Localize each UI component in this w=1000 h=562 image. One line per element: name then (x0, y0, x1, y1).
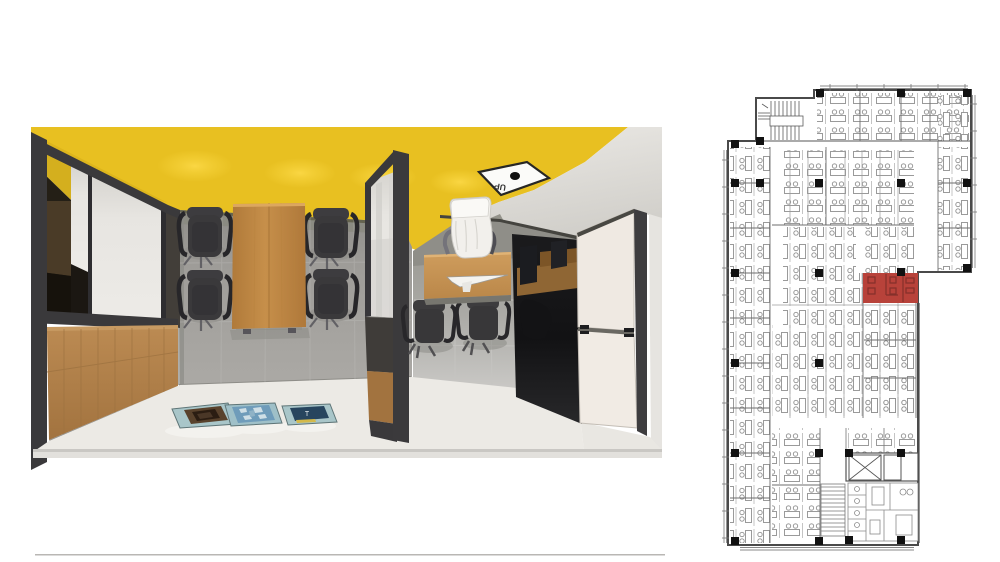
svg-text:T: T (305, 411, 310, 418)
svg-text:UP: UP (493, 181, 507, 193)
